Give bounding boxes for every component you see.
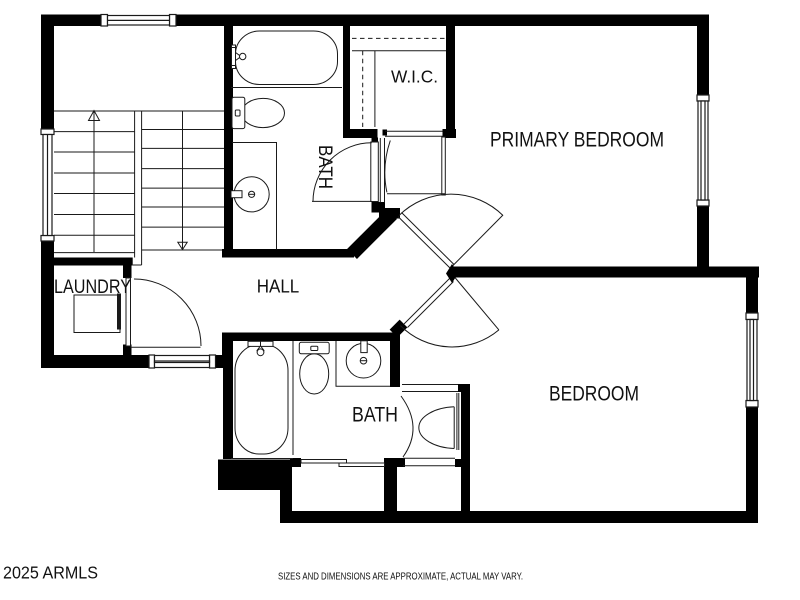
- svg-text:BATH: BATH: [352, 403, 398, 427]
- svg-text:SIZES AND DIMENSIONS ARE APPRO: SIZES AND DIMENSIONS ARE APPROXIMATE, AC…: [278, 572, 523, 583]
- svg-text:2025 ARMLS: 2025 ARMLS: [3, 562, 98, 582]
- svg-text:LAUNDRY: LAUNDRY: [54, 277, 131, 298]
- svg-text:PRIMARY BEDROOM: PRIMARY BEDROOM: [490, 128, 664, 151]
- svg-text:HALL: HALL: [257, 276, 300, 297]
- svg-text:BATH: BATH: [314, 145, 335, 189]
- svg-text:BEDROOM: BEDROOM: [549, 382, 639, 405]
- svg-text:W.I.C.: W.I.C.: [391, 66, 438, 86]
